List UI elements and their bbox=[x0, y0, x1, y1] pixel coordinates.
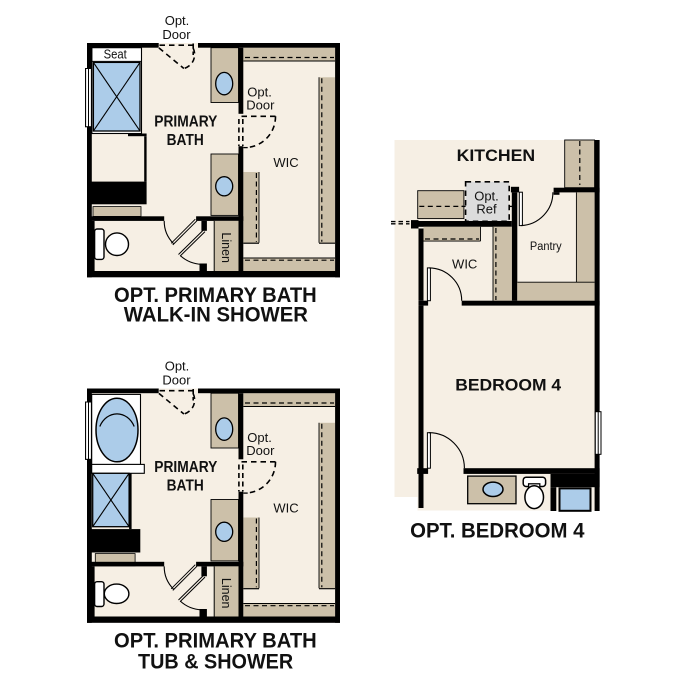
svg-text:BATH: BATH bbox=[167, 478, 204, 495]
svg-text:Ref: Ref bbox=[476, 202, 497, 217]
svg-text:WIC: WIC bbox=[452, 257, 477, 272]
svg-text:PRIMARY: PRIMARY bbox=[154, 114, 217, 131]
svg-text:WIC: WIC bbox=[273, 501, 298, 516]
svg-text:TUB & SHOWER: TUB & SHOWER bbox=[138, 650, 293, 673]
svg-text:Seat: Seat bbox=[104, 48, 128, 62]
svg-text:OPT. PRIMARY BATH: OPT. PRIMARY BATH bbox=[114, 630, 317, 653]
svg-text:Pantry: Pantry bbox=[530, 241, 562, 253]
svg-text:KITCHEN: KITCHEN bbox=[457, 147, 536, 165]
svg-text:Door: Door bbox=[246, 98, 275, 113]
svg-text:BATH: BATH bbox=[167, 132, 204, 149]
svg-text:PRIMARY: PRIMARY bbox=[154, 459, 217, 476]
svg-text:WIC: WIC bbox=[273, 155, 298, 170]
svg-text:Door: Door bbox=[162, 372, 191, 387]
svg-text:Linen: Linen bbox=[219, 578, 233, 609]
svg-text:OPT. BEDROOM 4: OPT. BEDROOM 4 bbox=[410, 519, 585, 542]
svg-text:Door: Door bbox=[162, 27, 191, 42]
svg-text:BEDROOM 4: BEDROOM 4 bbox=[455, 377, 562, 395]
svg-text:Door: Door bbox=[246, 443, 275, 458]
svg-text:WALK-IN SHOWER: WALK-IN SHOWER bbox=[124, 303, 308, 326]
svg-text:Linen: Linen bbox=[219, 232, 233, 263]
